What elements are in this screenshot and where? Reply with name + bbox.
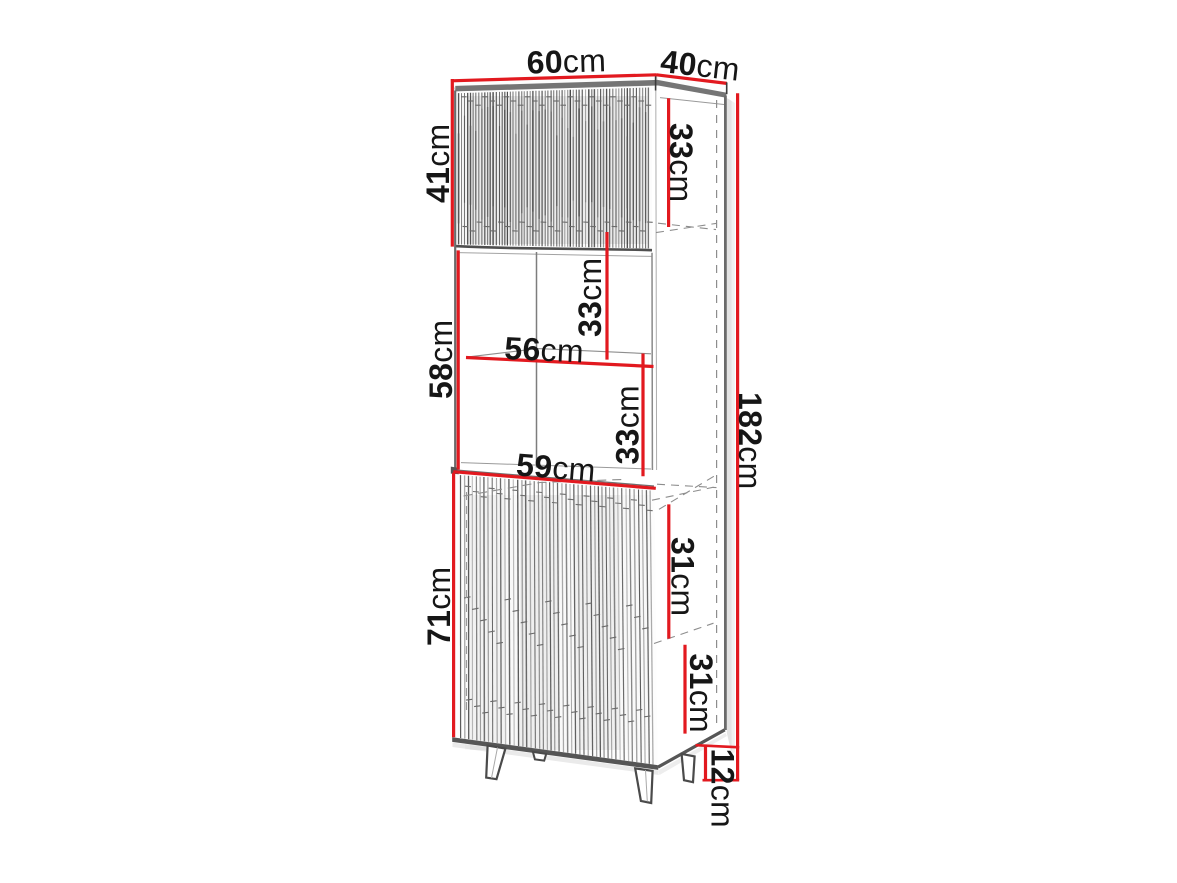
svg-text:12cm: 12cm — [705, 749, 741, 828]
svg-text:33cm: 33cm — [610, 385, 646, 464]
svg-text:60cm: 60cm — [526, 42, 607, 80]
svg-text:31cm: 31cm — [683, 654, 719, 733]
svg-text:33cm: 33cm — [572, 258, 608, 337]
svg-text:59cm: 59cm — [515, 446, 597, 488]
svg-text:58cm: 58cm — [423, 320, 459, 399]
svg-text:31cm: 31cm — [665, 537, 701, 616]
svg-text:41cm: 41cm — [420, 124, 456, 203]
svg-text:33cm: 33cm — [663, 123, 699, 202]
svg-text:71cm: 71cm — [421, 567, 457, 646]
svg-text:182cm: 182cm — [732, 392, 768, 490]
